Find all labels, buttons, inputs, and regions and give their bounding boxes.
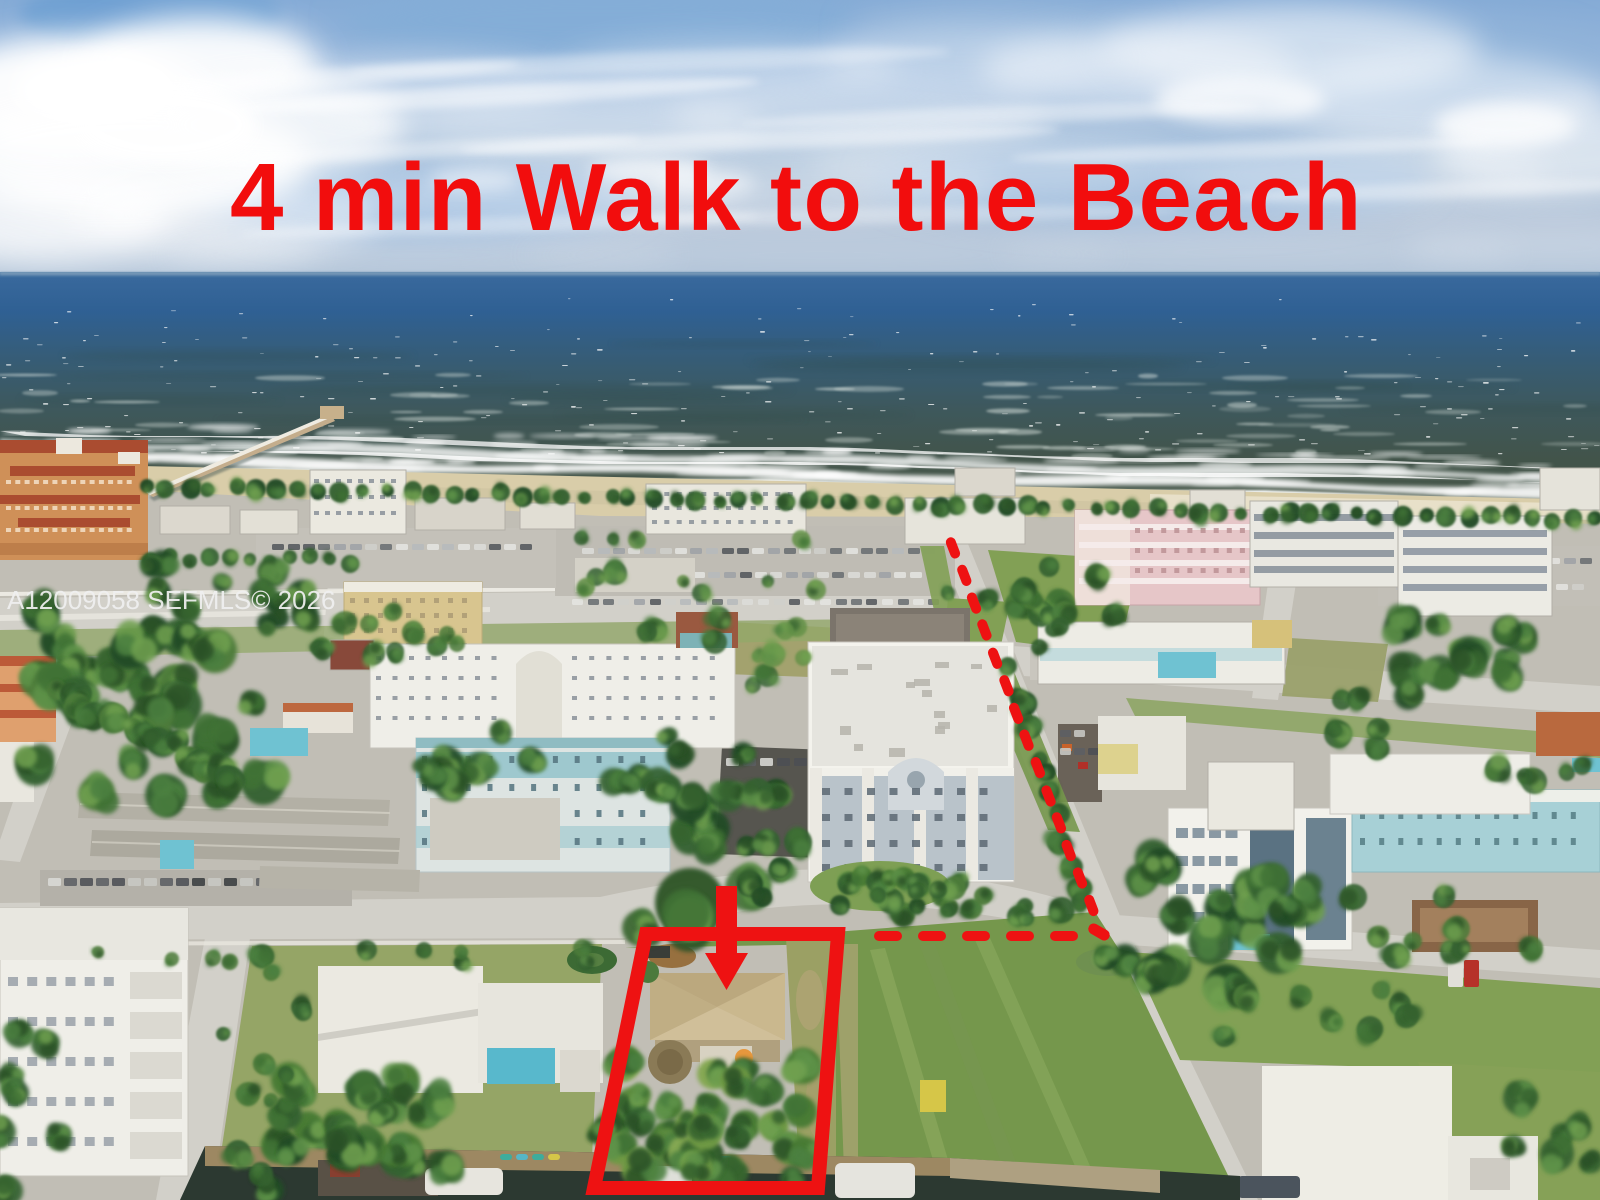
svg-text:4 min Walk to the Beach: 4 min Walk to the Beach <box>230 144 1363 251</box>
svg-text:A12009058 SEFMLS© 2026: A12009058 SEFMLS© 2026 <box>7 585 336 615</box>
